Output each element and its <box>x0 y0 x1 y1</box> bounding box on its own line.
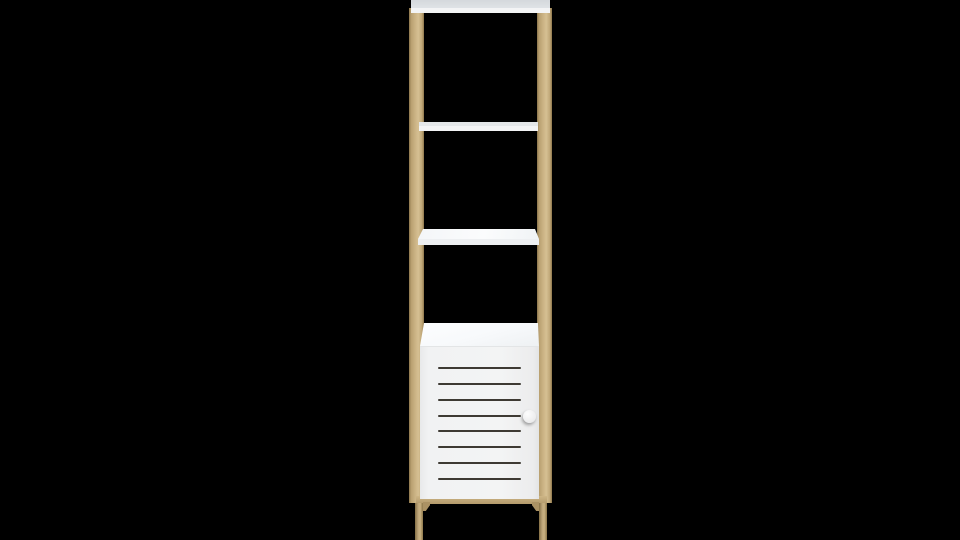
right-post <box>537 8 552 503</box>
base-cabinet <box>420 323 539 498</box>
middle-shelf-lower-edge <box>418 239 539 245</box>
scene <box>0 0 960 540</box>
top-shelf <box>411 0 550 13</box>
middle-shelf-lower-surface <box>418 229 539 239</box>
door-slat <box>438 462 521 464</box>
louvered-door <box>420 346 539 499</box>
door-slat <box>438 415 521 417</box>
left-leg-bracket <box>423 502 430 511</box>
middle-shelf-lower <box>418 229 539 245</box>
top-shelf-surface <box>411 0 550 8</box>
door-knob <box>523 410 536 423</box>
right-leg <box>539 503 547 540</box>
middle-shelf-upper <box>419 122 538 131</box>
door-slat <box>438 446 521 448</box>
door-slats <box>438 367 521 480</box>
door-slat <box>438 430 521 432</box>
top-shelf-edge <box>411 8 550 13</box>
middle-shelf-upper-edge <box>419 126 538 131</box>
left-leg <box>415 503 423 540</box>
door-slat <box>438 399 521 401</box>
right-leg-bracket <box>532 502 539 511</box>
cabinet-top-surface <box>420 323 539 346</box>
door-slat <box>438 367 521 369</box>
door-slat <box>438 478 521 480</box>
door-slat <box>438 383 521 385</box>
